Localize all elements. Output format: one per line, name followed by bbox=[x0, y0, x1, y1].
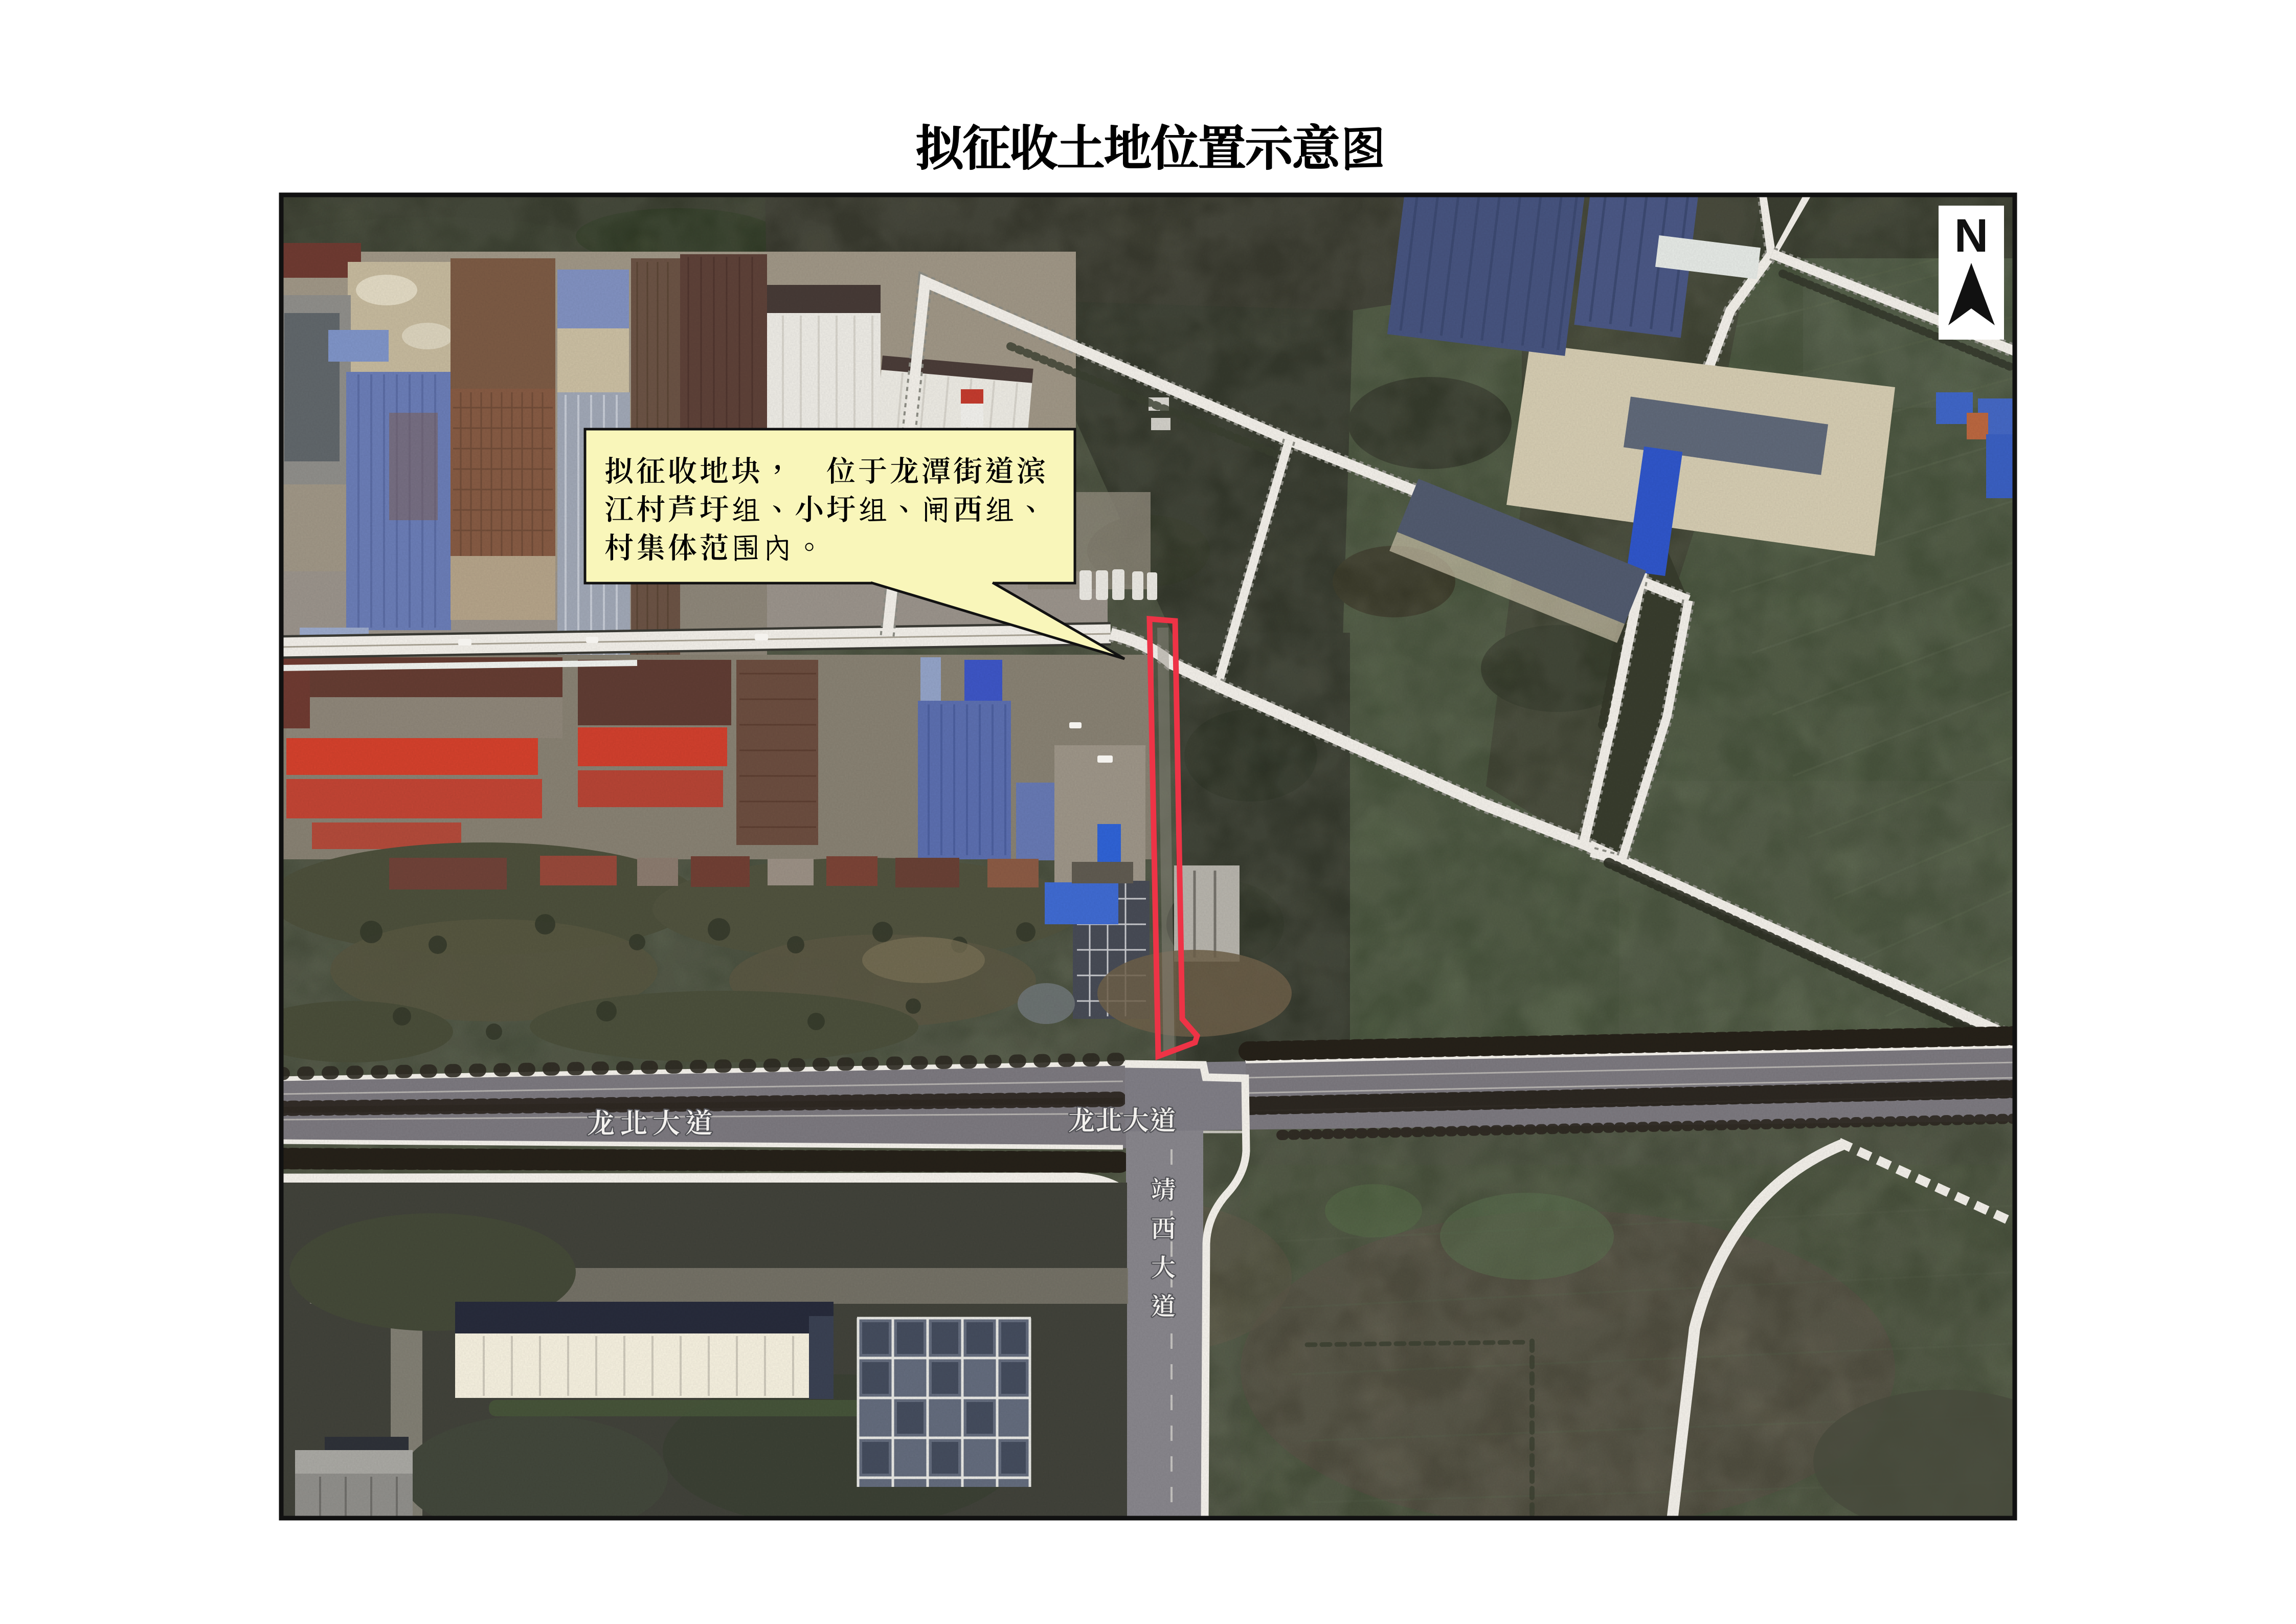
svg-text:N: N bbox=[1954, 210, 1988, 262]
